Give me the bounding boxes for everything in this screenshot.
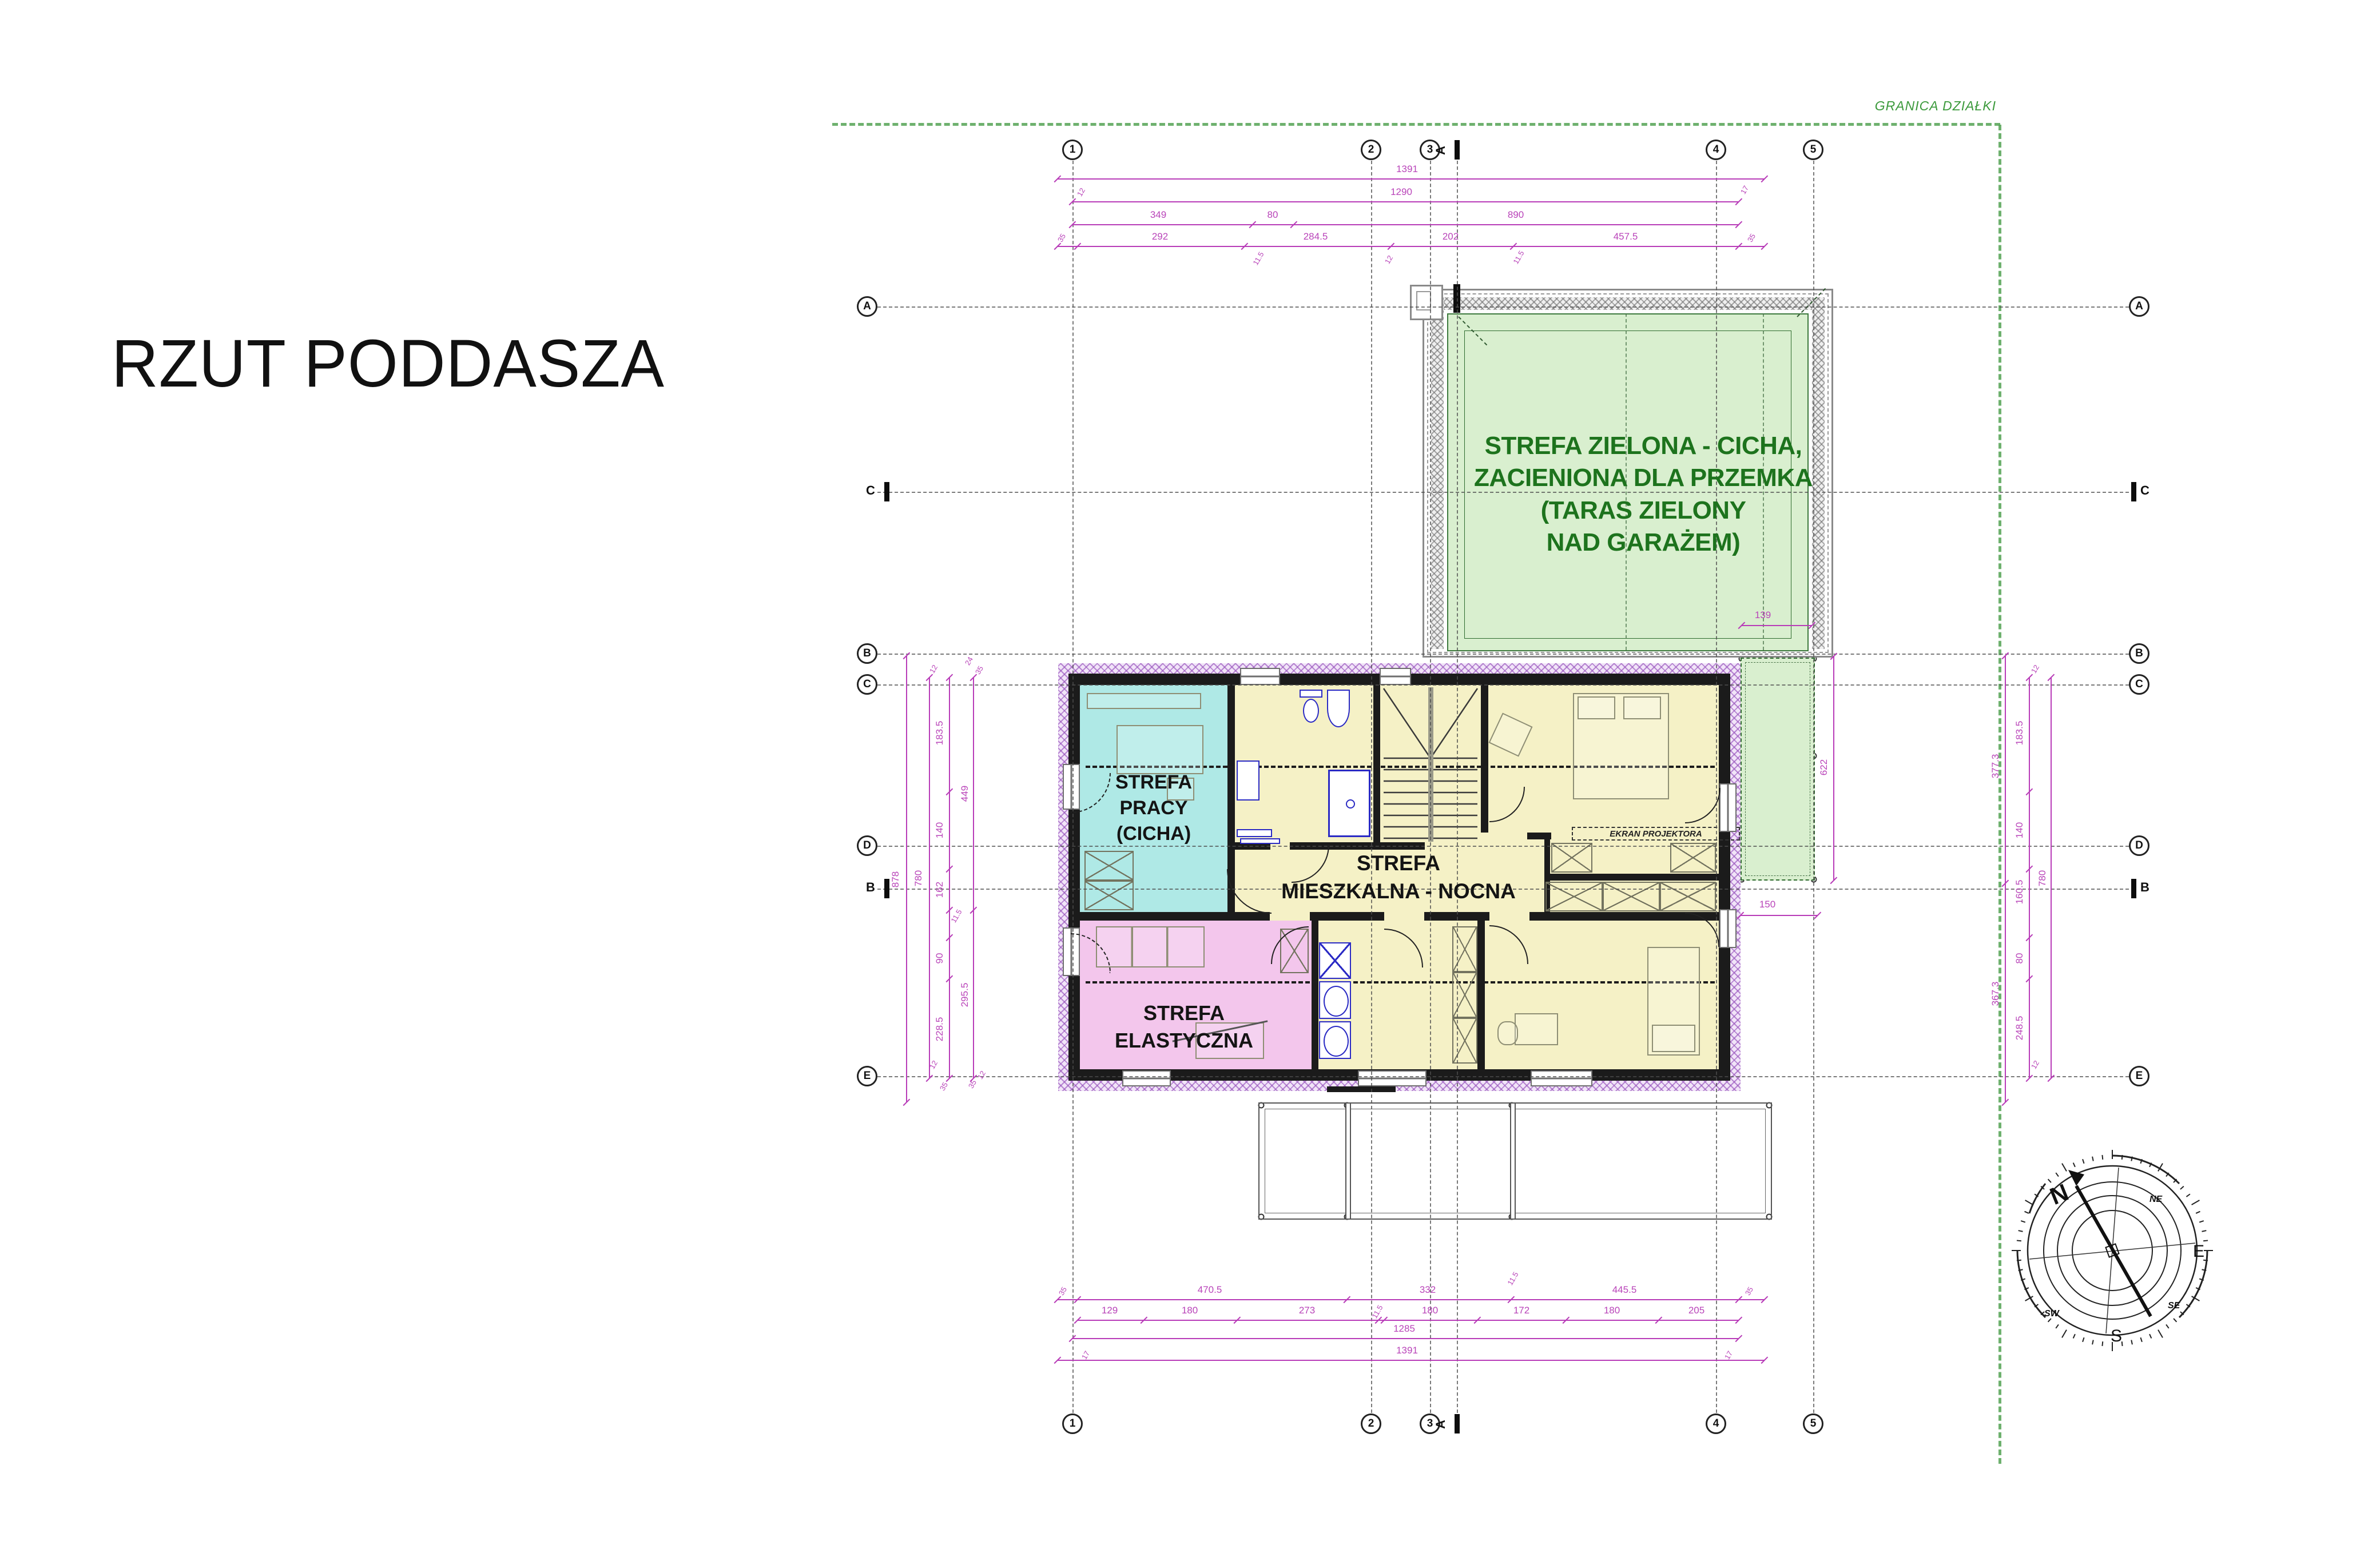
dimension-tick: [1140, 1316, 1147, 1324]
dimension-line: [949, 678, 950, 1078]
dim-label: 35: [1743, 1285, 1755, 1297]
compass-sw: SW: [2044, 1309, 2060, 1319]
dimension-tick: [2025, 865, 2033, 873]
dim-label: 12: [976, 1069, 987, 1081]
dimension-line: [973, 678, 974, 1078]
dim-label: 90: [934, 953, 945, 964]
grid-column-marker: 2: [1361, 1413, 1381, 1434]
dimension-tick: [1562, 1316, 1570, 1324]
dim-label: 35: [1056, 232, 1067, 244]
knee-wall-line: [1086, 981, 1715, 983]
shelf: [1087, 693, 1201, 709]
dim-label: 284.5: [1304, 231, 1328, 242]
dimension-tick: [2047, 1074, 2055, 1082]
dimension-tick: [1735, 1316, 1742, 1324]
grid-row-marker: A: [2129, 296, 2149, 317]
dim-label: 140: [2014, 822, 2025, 838]
dim-label: 12: [928, 663, 939, 675]
dim-label: 11.5: [949, 908, 963, 925]
dim-label: 35: [1746, 232, 1757, 244]
dim-label: 129: [1102, 1305, 1118, 1316]
dimension-tick: [945, 788, 953, 795]
dim-label: 12: [928, 1059, 939, 1070]
dim-label: 292: [1152, 231, 1168, 242]
dimension-tick: [903, 652, 910, 659]
dim-label: 12: [2029, 663, 2041, 675]
staircase: [1380, 685, 1481, 843]
laundry-sink: [1319, 942, 1351, 979]
dimension-tick: [2001, 1098, 2009, 1106]
dim-label: 35: [938, 1081, 949, 1092]
chair: [1497, 1021, 1518, 1045]
section-marker-bar: [2131, 482, 2136, 501]
dimension-tick: [2025, 674, 2033, 681]
dimension-tick: [1074, 1296, 1081, 1303]
grid-row-marker: D: [2129, 835, 2149, 856]
dim-label: 80: [2014, 953, 2025, 964]
dim-label: 202: [1443, 231, 1459, 242]
dimension-line: [2005, 656, 2006, 1102]
dim-label: 35: [974, 664, 985, 676]
dim-label: 183.5: [934, 721, 945, 746]
dimension-line: [1072, 1338, 1739, 1339]
dim-label: 12: [1075, 186, 1087, 198]
plot-boundary-line-top: [832, 123, 2000, 126]
dimension-line: [1833, 656, 1834, 881]
dimension-tick: [1068, 221, 1076, 228]
compass-s: S: [2111, 1327, 2122, 1345]
window: [1531, 1070, 1592, 1086]
dimension-tick: [945, 975, 953, 982]
dimension-line: [2029, 678, 2030, 1078]
section-marker-label: C: [866, 483, 875, 498]
window: [1122, 1070, 1171, 1086]
dimension-tick: [970, 674, 977, 681]
dim-label: 470.5: [1198, 1284, 1222, 1296]
window: [1719, 909, 1737, 948]
dimension-tick: [1054, 1356, 1061, 1364]
dimension-tick: [1761, 1296, 1768, 1303]
dimension-tick: [1735, 242, 1742, 250]
dim-label: 35: [1057, 1285, 1068, 1297]
grid-column-marker: 3: [1420, 140, 1440, 160]
terrace-zone-label: STREFA ZIELONA - CICHA, ZACIENIONA DLA P…: [1460, 430, 1827, 559]
dimension-tick: [1068, 1335, 1076, 1342]
dimension-tick: [1054, 175, 1061, 182]
dimension-tick: [903, 1098, 910, 1106]
dimension-tick: [925, 1074, 933, 1082]
green-side-strip: [1741, 658, 1815, 881]
balcony-threshold: [1327, 1086, 1396, 1092]
window: [1380, 668, 1411, 685]
lower-footprint-outline: [1258, 1102, 1772, 1220]
vanity: [1237, 829, 1272, 837]
sink: [1237, 760, 1259, 801]
toilet-bowl: [1303, 699, 1319, 723]
section-marker-label: A: [1433, 146, 1448, 155]
grid-column-marker: 5: [1803, 1413, 1823, 1434]
zone-label-nocna: STREFAMIESZKALNA - NOCNA: [1255, 850, 1541, 906]
dim-label: 17: [1080, 1349, 1091, 1361]
vanity: [1240, 838, 1280, 844]
terrace-wall-hatch: [1431, 297, 1825, 310]
floor-plan-canvas: RZUT PODDASZA GRANICA DZIAŁKI STREFA ZIE…: [0, 0, 2380, 1557]
dimension-tick: [1509, 242, 1517, 250]
dimension-tick: [2025, 1074, 2033, 1082]
dimension-tick: [1761, 242, 1768, 250]
section-marker-label: B: [866, 880, 875, 895]
dimension-line: [1741, 915, 1818, 916]
dimension-tick: [945, 906, 953, 914]
grid-row-marker: D: [857, 835, 877, 856]
footprint-divider: [1510, 1104, 1516, 1218]
dimension-tick: [2001, 879, 2009, 887]
dim-label: 12: [2029, 1059, 2041, 1070]
chimney: [1410, 285, 1443, 320]
dim-label: 890: [1508, 209, 1524, 221]
dim-label: 1290: [1390, 186, 1412, 198]
dimension-tick: [1241, 242, 1248, 250]
dimension-tick: [1655, 1316, 1662, 1324]
grid-row-marker: A: [857, 296, 877, 317]
desk: [1117, 725, 1203, 774]
plot-boundary-line-right: [1998, 125, 2001, 1464]
grid-column-marker: 1: [1062, 1413, 1083, 1434]
dim-label: 1285: [1393, 1323, 1415, 1335]
section-marker-label: C: [2140, 483, 2149, 498]
dimension-tick: [945, 1074, 953, 1082]
dim-label: 180: [1182, 1305, 1198, 1316]
dimension-tick: [970, 906, 977, 914]
dimension-tick: [2001, 652, 2009, 659]
dimension-tick: [2047, 674, 2055, 681]
dimension-tick: [1054, 1296, 1061, 1303]
dim-label: 332: [1420, 1284, 1436, 1296]
grid-column-marker: 2: [1361, 140, 1381, 160]
dimension-tick: [945, 674, 953, 681]
dim-label: 878: [890, 871, 901, 887]
dim-label: 248.5: [2014, 1016, 2025, 1041]
dim-label: 449: [959, 786, 971, 802]
projector-screen: EKRAN PROJEKTORA: [1572, 827, 1740, 841]
dimension-tick: [1507, 1296, 1515, 1303]
dimension-tick: [1290, 221, 1297, 228]
grid-column-marker: 4: [1706, 140, 1726, 160]
dim-label: 35: [967, 1078, 978, 1090]
compass-ne: NE: [2149, 1194, 2163, 1204]
zone-label-elastyczna: STREFAELASTYCZNA: [1090, 999, 1278, 1054]
dim-label: 183.5: [2014, 721, 2025, 746]
dim-label: 622: [1818, 759, 1830, 775]
shower-drain: [1346, 799, 1355, 809]
dim-label: 162: [934, 882, 945, 898]
dimension-tick: [2025, 934, 2033, 941]
window: [1358, 1070, 1427, 1086]
window: [1063, 927, 1080, 976]
dimension-tick: [1735, 198, 1742, 205]
dim-label: 17: [1723, 1349, 1734, 1361]
compass-rose: N NE E SE S SW: [2006, 1145, 2218, 1356]
section-marker-bar: [884, 482, 889, 501]
page-title: RZUT PODDASZA: [112, 325, 665, 403]
grid-column-marker: 5: [1803, 140, 1823, 160]
dimension-line: [1058, 1360, 1765, 1361]
dim-label: 150: [1759, 899, 1775, 910]
dimension-line: [1058, 246, 1765, 247]
dim-label: 445.5: [1612, 1284, 1637, 1296]
dimension-tick: [945, 934, 953, 941]
grid-row-marker: C: [857, 674, 877, 695]
dim-label: 780: [913, 870, 924, 886]
dimension-tick: [925, 674, 933, 681]
dimension-line: [929, 678, 930, 1078]
toilet-tank: [1300, 690, 1322, 698]
zone-label-pracy: STREFAPRACY(CICHA): [1080, 770, 1227, 847]
dim-label: 295.5: [959, 983, 971, 1008]
dimension-tick: [1735, 1296, 1742, 1303]
dimension-line: [1078, 1320, 1739, 1321]
dryer-door: [1324, 1026, 1349, 1057]
desk: [1515, 1013, 1558, 1045]
grid-row-marker: B: [857, 643, 877, 664]
dim-label: 160.5: [2014, 880, 2025, 905]
window: [1240, 668, 1280, 685]
dim-label: 140: [934, 822, 945, 838]
section-marker-bar: [2131, 879, 2136, 898]
footprint-divider: [1345, 1104, 1351, 1218]
dim-label: 205: [1688, 1305, 1704, 1316]
dim-label: 11.5: [1251, 250, 1265, 267]
dimension-tick: [1249, 221, 1256, 228]
dimension-tick: [1473, 1316, 1481, 1324]
plot-boundary-label: GRANICA DZIAŁKI: [1825, 98, 1996, 114]
dim-label: 11.5: [1370, 1304, 1384, 1320]
sofa: [1096, 926, 1205, 967]
compass-n: N: [2046, 1178, 2072, 1210]
grid-row-marker: B: [2129, 643, 2149, 664]
pillow: [1578, 696, 1615, 719]
dimension-line: [1058, 178, 1765, 180]
dim-label: 11.5: [1511, 249, 1525, 266]
dimension-tick: [1380, 1316, 1388, 1324]
dimension-tick: [1761, 1356, 1768, 1364]
dim-label: 172: [1513, 1305, 1529, 1316]
dimension-tick: [1054, 242, 1061, 250]
dimension-line: [1058, 1299, 1765, 1300]
grid-row-marker: E: [857, 1066, 877, 1086]
section-marker-label: A: [1433, 1420, 1448, 1429]
section-marker-bar: [1455, 140, 1460, 160]
dim-label: 180: [1604, 1305, 1620, 1316]
terrace-wall-hatch: [1431, 297, 1444, 649]
section-marker-label: B: [2140, 880, 2149, 895]
compass-se: SE: [2168, 1301, 2181, 1311]
window: [1719, 783, 1737, 832]
dim-label: 228.5: [934, 1017, 945, 1042]
dimension-tick: [1074, 1316, 1081, 1324]
dimension-tick: [1830, 877, 1837, 884]
dim-label: 12: [1383, 254, 1394, 265]
washer-door: [1324, 986, 1349, 1017]
window: [1063, 764, 1080, 810]
pillow: [1623, 696, 1661, 719]
dimension-tick: [1233, 1316, 1241, 1324]
dimension-tick: [1735, 1335, 1742, 1342]
dimension-tick: [1387, 242, 1394, 250]
dim-label: 17: [1739, 184, 1750, 196]
section-a-bar: [1453, 284, 1460, 313]
dim-label: 780: [2037, 870, 2048, 886]
compass-e: E: [2193, 1242, 2204, 1261]
dim-label: 24: [963, 655, 975, 667]
dimension-tick: [945, 865, 953, 873]
dim-label: 1391: [1396, 164, 1418, 175]
dim-label: 273: [1299, 1305, 1315, 1316]
dim-label: 180: [1422, 1305, 1438, 1316]
section-marker-bar: [884, 879, 889, 898]
section-marker-bar: [1455, 1414, 1460, 1433]
dimension-tick: [2025, 788, 2033, 795]
dimension-line: [1072, 201, 1739, 202]
dimension-tick: [1074, 242, 1081, 250]
bidet: [1327, 690, 1350, 727]
dimension-tick: [1761, 175, 1768, 182]
pillow: [1652, 1025, 1695, 1052]
dimension-tick: [1814, 911, 1821, 919]
dimension-tick: [970, 1074, 977, 1082]
grid-column-marker: 3: [1420, 1413, 1440, 1434]
dimension-tick: [1374, 1316, 1382, 1324]
grid-column-marker: 4: [1706, 1413, 1726, 1434]
dim-label: 11.5: [1505, 1271, 1520, 1287]
dimension-tick: [1735, 221, 1742, 228]
dimension-tick: [1343, 1296, 1350, 1303]
dim-label: 349: [1150, 209, 1166, 221]
grid-row-marker: C: [2129, 674, 2149, 695]
grid-row-marker: E: [2129, 1066, 2149, 1086]
grid-column-marker: 1: [1062, 140, 1083, 160]
dimension-line: [2051, 678, 2052, 1078]
dim-label: 1391: [1396, 1345, 1418, 1356]
dimension-line: [906, 656, 907, 1102]
dimension-tick: [1068, 198, 1076, 205]
dim-label: 457.5: [1614, 231, 1638, 242]
dimension-line: [1072, 224, 1739, 225]
dim-label: 80: [1268, 209, 1278, 221]
dimension-tick: [2025, 975, 2033, 982]
